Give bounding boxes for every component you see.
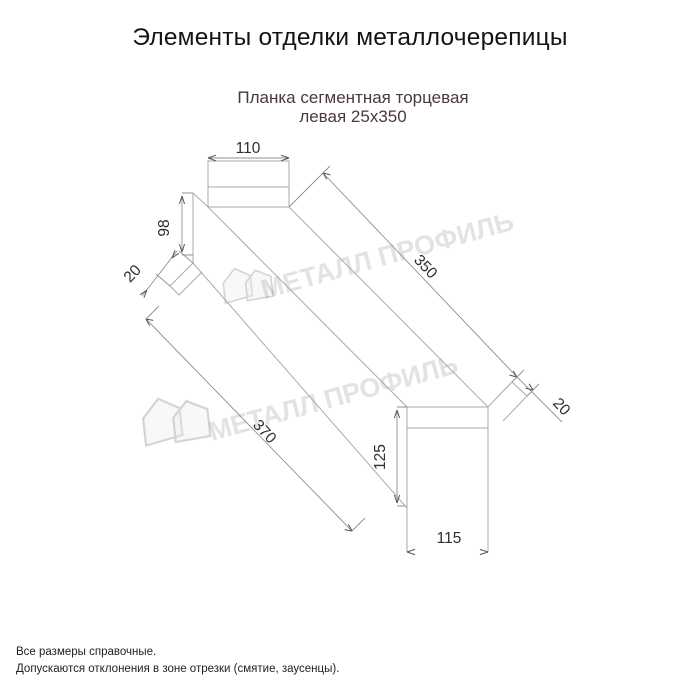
dimension-20-right: 20: [512, 370, 574, 422]
dim-label-left-tab: 20: [121, 262, 145, 286]
dimension-115: 115: [407, 530, 488, 555]
footnote-line-1: Все размеры справочные.: [16, 644, 339, 661]
footnote-line-2: Допускаются отклонения в зоне отрезки (с…: [16, 661, 339, 678]
dimension-98: 98: [156, 193, 193, 255]
watermark-text: МЕТАЛЛ ПРОФИЛЬ: [206, 349, 463, 447]
dimension-110: 110: [208, 140, 289, 161]
dim-label-top-width: 110: [236, 140, 261, 157]
watermark-text: МЕТАЛЛ ПРОФИЛЬ: [258, 206, 518, 305]
dim-label-right-tab: 20: [549, 395, 573, 419]
dimension-125: 125: [372, 407, 407, 506]
footnotes: Все размеры справочные. Допускаются откл…: [16, 644, 339, 677]
dim-label-bottom-height: 125: [372, 444, 389, 470]
dim-label-bottom-width: 115: [437, 530, 462, 547]
dim-label-left-height: 98: [156, 219, 173, 236]
watermark-logo-lower: МЕТАЛЛ ПРОФИЛЬ: [137, 349, 462, 450]
technical-drawing: МЕТАЛЛ ПРОФИЛЬ МЕТАЛЛ ПРОФИЛЬ 110: [0, 0, 700, 700]
